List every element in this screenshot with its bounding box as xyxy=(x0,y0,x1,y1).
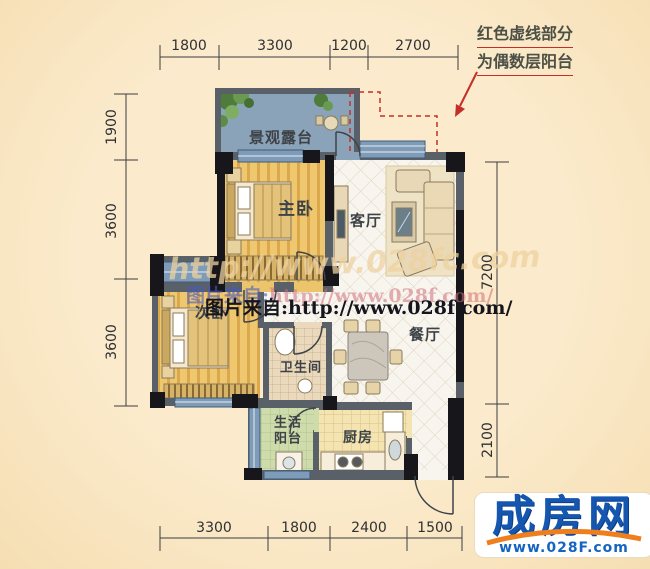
black-watermark: 图片来自:http://www.028f.com/ xyxy=(205,293,512,320)
terrace-label: 景观露台 xyxy=(249,127,313,148)
balcony-south-window xyxy=(264,471,310,479)
floorplan-image: http://www.028fc.com 景观露台 主卧 客厅 次卧 卫生间 餐… xyxy=(0,0,650,569)
dim-bottom-3300: 3300 xyxy=(196,520,232,536)
dim-bottom-1800: 1800 xyxy=(281,520,317,536)
master-bedroom-label: 主卧 xyxy=(278,195,314,220)
even-floor-balcony-annotation: 红色虚线部分 为偶数层阳台 xyxy=(477,22,573,78)
dim-bottom-1500: 1500 xyxy=(417,520,453,536)
entry-door xyxy=(415,476,453,514)
site-logo-url: www.028F.com xyxy=(475,540,650,556)
site-logo: 成房网 www.028F.com xyxy=(474,492,650,558)
kitchen-label: 厨房 xyxy=(343,427,373,447)
dim-top-1200: 1200 xyxy=(331,38,367,54)
dim-left-3600b: 3600 xyxy=(104,324,120,360)
bathroom-label: 卫生间 xyxy=(280,357,322,376)
dim-left-1900: 1900 xyxy=(104,109,120,145)
annotation-line2: 为偶数层阳台 xyxy=(477,50,573,76)
dining-room-label: 餐厅 xyxy=(409,324,441,345)
annotation-arrow xyxy=(455,72,477,117)
dim-top-2700: 2700 xyxy=(395,38,431,54)
dim-left-3600a: 3600 xyxy=(104,203,120,239)
dim-top-3300: 3300 xyxy=(257,38,293,54)
annotation-line1: 红色虚线部分 xyxy=(477,22,573,48)
utility-balcony-label-line2: 阳台 xyxy=(274,428,302,447)
dim-top-1800: 1800 xyxy=(171,38,207,54)
dim-bottom-2400: 2400 xyxy=(351,520,387,536)
living-bay-window xyxy=(360,141,425,158)
dim-right-2100: 2100 xyxy=(480,422,496,458)
living-room-label: 客厅 xyxy=(350,210,382,231)
